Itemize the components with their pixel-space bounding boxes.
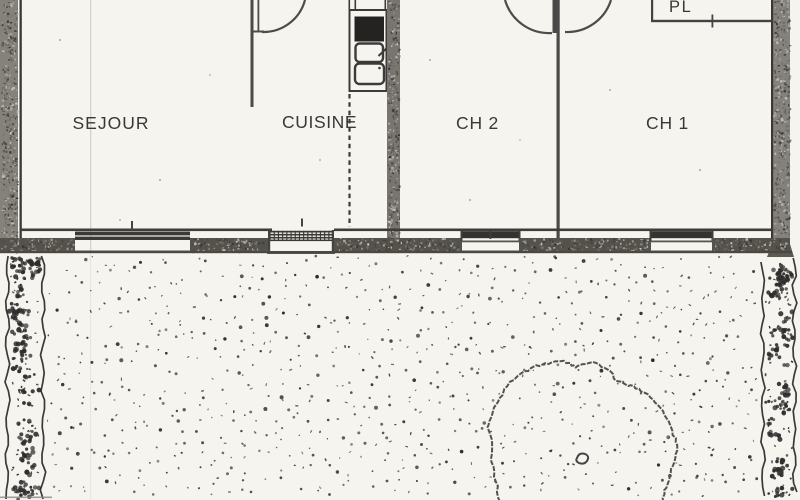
svg-text:CUISINE: CUISINE bbox=[282, 112, 357, 132]
svg-text:CH 2: CH 2 bbox=[456, 113, 499, 133]
svg-text:CH 1: CH 1 bbox=[646, 113, 689, 133]
svg-text:PL: PL bbox=[669, 0, 692, 16]
svg-text:SEJOUR: SEJOUR bbox=[73, 113, 150, 133]
